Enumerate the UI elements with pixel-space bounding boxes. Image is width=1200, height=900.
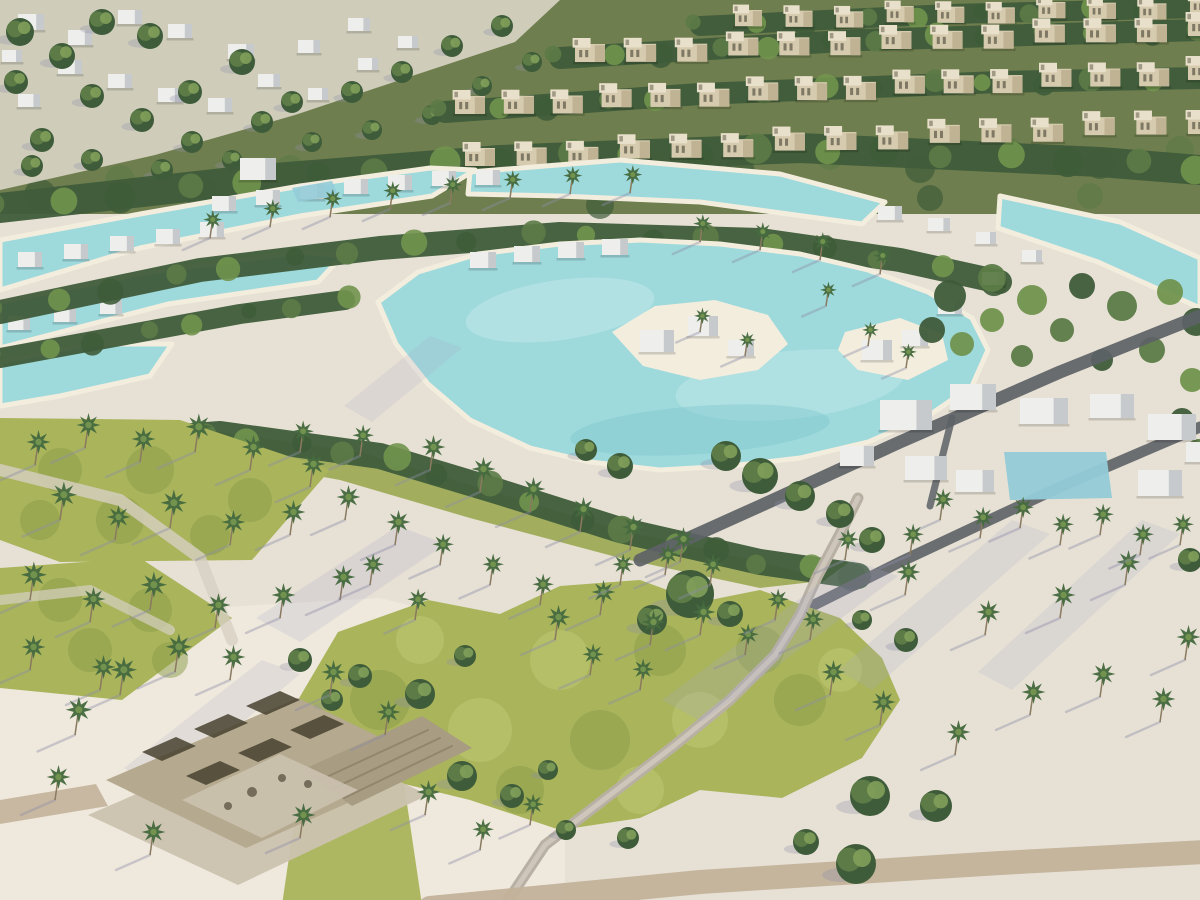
aerial-resort-rendering	[0, 0, 1200, 900]
scene-svg	[0, 0, 1200, 900]
